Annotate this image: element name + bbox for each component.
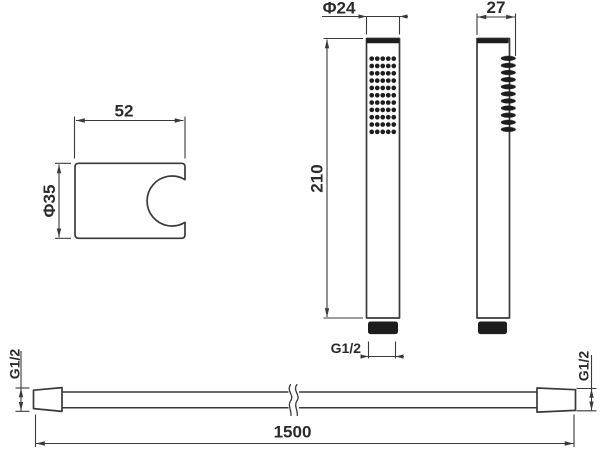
hose-left-fitting <box>34 388 63 412</box>
handshower-front-outlet-connector <box>368 322 398 335</box>
shower-set-technical-drawing: 52 Φ35 Φ24 210 G1/2 <box>0 0 600 453</box>
hose-left-thread-label: G1/2 <box>7 349 23 380</box>
handshower-depth-label: 27 <box>487 0 506 17</box>
spray-nozzle-grid <box>369 55 397 136</box>
hose-right-fitting <box>537 388 576 412</box>
outlet-thread-arrow-left <box>361 354 369 358</box>
handshower-front-top-cap <box>367 39 400 44</box>
hose-length-label: 1500 <box>274 423 312 442</box>
wall-bracket-outline <box>75 163 185 238</box>
hose-break-mark-left <box>289 385 292 416</box>
bracket-width-label: 52 <box>115 102 134 121</box>
handshower-outlet-thread-label: G1/2 <box>331 340 362 356</box>
handshower-side-view: 27 <box>477 0 516 334</box>
shower-hose-view: 1500 G1/2 G1/2 <box>7 349 597 447</box>
handshower-front-view: Φ24 210 G1/2 <box>308 0 409 359</box>
outlet-thread-arrow-right <box>396 354 404 358</box>
handshower-side-outlet-connector <box>478 322 507 335</box>
handshower-head-diameter-label: Φ24 <box>323 0 356 18</box>
head-diameter-arrow-right <box>400 14 408 18</box>
hose-break-mark-right <box>296 385 299 416</box>
hose-right-thread-label: G1/2 <box>576 351 592 382</box>
head-diameter-arrow-left <box>359 14 367 18</box>
handshower-length-label: 210 <box>308 164 327 192</box>
nozzle-profile-column <box>500 55 516 133</box>
bracket-diameter-label: Φ35 <box>40 185 59 218</box>
wall-bracket-view: 52 Φ35 <box>40 102 185 239</box>
technical-drawing-page: 52 Φ35 Φ24 210 G1/2 <box>0 0 600 453</box>
handshower-side-top-cap <box>477 39 509 44</box>
